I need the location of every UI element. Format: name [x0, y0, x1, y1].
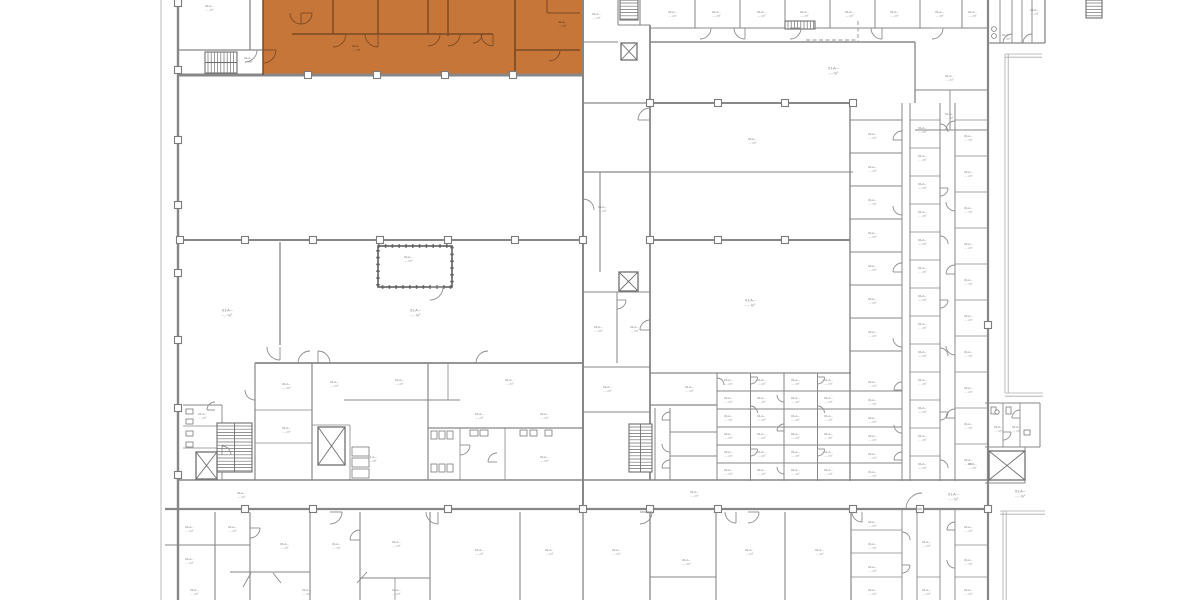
courtyard-outline — [1000, 54, 1045, 600]
room-label: 01-A-··· — [1015, 490, 1026, 494]
room-area-label: ··.·· m² — [368, 459, 377, 463]
staircase-icon — [1086, 0, 1102, 18]
room-area-label: ··.·· m² — [791, 418, 800, 422]
room-area-label: ··.·· m² — [612, 552, 621, 556]
room-area-label: ··.·· m² — [685, 389, 694, 393]
room-area-label: ··.·· m² — [824, 472, 833, 476]
room-area-label: ··.·· m² — [824, 454, 833, 458]
room-area-label: ··.·· m² — [1012, 429, 1021, 433]
room-area-label: ··.·· m² — [598, 209, 607, 213]
room-area-label: ··.·· m² — [918, 326, 927, 330]
room-area-label: ··.·· m² — [964, 354, 973, 358]
room-area-label: ··.·· m² — [824, 400, 833, 404]
room-area-label: ··.·· m² — [332, 546, 341, 550]
room-area-label: ··.·· m² — [945, 78, 954, 82]
elevators — [196, 43, 1025, 480]
room-area-label: ··.·· m² — [745, 552, 754, 556]
room-area-label: ··.·· m² — [868, 301, 877, 305]
room-area-label: ··.·· m² — [868, 474, 877, 478]
room-area-label: ··.·· m² — [845, 14, 854, 18]
room-area-label: ··.·· m² — [410, 313, 421, 317]
room-area-label: ··.·· m² — [757, 436, 766, 440]
room-area-label: ··.·· m² — [918, 410, 927, 414]
room-area-label: ··.·· m² — [757, 400, 766, 404]
room-area-label: ··.·· m² — [392, 544, 401, 548]
room-area-label: ··.·· m² — [592, 16, 601, 20]
room-area-label: ··.·· m² — [757, 472, 766, 476]
room-area-label: ··.·· m² — [724, 418, 733, 422]
room-area-label: ··.·· m² — [222, 313, 233, 317]
elevator-icon — [621, 43, 637, 60]
staircase-icon — [620, 0, 638, 20]
room-area-label: ··.·· m² — [185, 529, 194, 533]
door-swings — [207, 13, 1032, 573]
room-area-label: ··.·· m² — [948, 497, 959, 501]
room-label: 01-A-··· — [745, 299, 756, 303]
room-area-label: ··.·· m² — [964, 210, 973, 214]
room-area-label: ··.·· m² — [964, 529, 973, 533]
room-area-label: ··.·· m² — [935, 14, 944, 18]
room-area-label: ··.·· m² — [868, 136, 877, 140]
room-area-label: ··.·· m² — [330, 384, 339, 388]
room-area-label: ··.·· m² — [868, 268, 877, 272]
room-area-label: ··.·· m² — [682, 562, 691, 566]
room-area-label: ··.·· m² — [918, 382, 927, 386]
room-label: 01-A-··· — [410, 309, 421, 313]
room-area-label: ··.·· m² — [868, 524, 877, 528]
room-area-label: ··.·· m² — [964, 390, 973, 394]
room-area-label: ··.·· m² — [868, 438, 877, 442]
room-area-label: ··.·· m² — [724, 436, 733, 440]
room-area-label: ··.·· m² — [828, 71, 839, 75]
room-area-label: ··.·· m² — [994, 429, 1003, 433]
room-area-label: ··.·· m² — [1002, 37, 1011, 41]
staircase-icon — [205, 52, 237, 73]
room-area-label: ··.·· m² — [918, 158, 927, 162]
room-area-label: ··.·· m² — [868, 546, 877, 550]
room-area-label: ··.·· m² — [964, 174, 973, 178]
elevator-icon — [196, 452, 217, 479]
room-area-label: ··.·· m² — [757, 454, 766, 458]
room-area-label: ··.·· m² — [945, 116, 954, 120]
room-area-label: ··.·· m² — [475, 552, 484, 556]
room-area-label: ··.·· m² — [724, 400, 733, 404]
room-area-label: ··.·· m² — [868, 202, 877, 206]
room-area-label: ··.·· m² — [302, 592, 311, 596]
room-area-label: ··.·· m² — [918, 186, 927, 190]
room-area-label: ··.·· m² — [244, 60, 253, 64]
room-area-label: ··.·· m² — [724, 382, 733, 386]
room-area-label: ··.·· m² — [237, 495, 246, 499]
room-area-label: ··.·· m² — [868, 235, 877, 239]
room-area-label: ··.·· m² — [724, 454, 733, 458]
room-area-label: ··.·· m² — [791, 382, 800, 386]
room-area-label: ··.·· m² — [1030, 12, 1039, 16]
room-area-label: ··.·· m² — [282, 430, 291, 434]
room-area-label: ··.·· m² — [395, 382, 404, 386]
room-area-label: ··.·· m² — [922, 592, 931, 596]
room-area-label: ··.·· m² — [280, 546, 289, 550]
staircase-icon — [629, 424, 652, 472]
room-area-label: ··.·· m² — [964, 562, 973, 566]
room-area-label: ··.·· m² — [745, 303, 756, 307]
floor-plan-drawing: 01-A-·····.·· m²01-A-·····.·· m²01-A-···… — [0, 0, 1200, 600]
room-area-label: ··.·· m² — [964, 246, 973, 250]
room-area-label: ··.·· m² — [868, 402, 877, 406]
room-area-label: ··.·· m² — [791, 472, 800, 476]
dotted-room — [378, 246, 452, 287]
room-area-label: ··.·· m² — [868, 456, 877, 460]
room-area-label: ··.·· m² — [868, 592, 877, 596]
room-area-label: ··.·· m² — [724, 472, 733, 476]
room-area-label: ··.·· m² — [540, 459, 549, 463]
room-area-label: ··.·· m² — [868, 334, 877, 338]
room-area-label: ··.·· m² — [918, 438, 927, 442]
room-area-label: ··.·· m² — [690, 494, 699, 498]
room-area-label: ··.·· m² — [964, 282, 973, 286]
room-area-label: ··.·· m² — [918, 242, 927, 246]
floor-plan-page: 01-A-·····.·· m²01-A-·····.·· m²01-A-···… — [0, 0, 1200, 600]
room-area-label: ··.·· m² — [198, 416, 207, 420]
room-area-label: ··.·· m² — [968, 466, 977, 470]
room-area-label: ··.·· m² — [392, 592, 401, 596]
room-area-label: ··.·· m² — [964, 592, 973, 596]
room-area-label: ··.·· m² — [791, 454, 800, 458]
room-area-label: ··.·· m² — [968, 14, 977, 18]
room-area-label: ··.·· m² — [964, 138, 973, 142]
room-area-label: ··.·· m² — [815, 552, 824, 556]
room-area-label: ··.·· m² — [748, 141, 757, 145]
room-area-label: ··.·· m² — [868, 169, 877, 173]
room-area-label: ··.·· m² — [185, 561, 194, 565]
room-area-label: ··.·· m² — [545, 552, 554, 556]
elevator-icon — [318, 427, 345, 465]
room-area-label: ··.·· m² — [712, 14, 721, 18]
room-area-label: ··.·· m² — [922, 544, 931, 548]
room-area-label: ··.·· m² — [791, 400, 800, 404]
room-label: 01-A-··· — [222, 309, 233, 313]
elevator-icon — [989, 451, 1025, 480]
room-area-label: ··.·· m² — [282, 386, 291, 390]
room-area-label: ··.·· m² — [918, 214, 927, 218]
room-area-label: ··.·· m² — [868, 569, 877, 573]
room-area-label: ··.·· m² — [964, 318, 973, 322]
room-label: 01-A-··· — [948, 493, 959, 497]
room-area-label: ··.·· m² — [918, 466, 927, 470]
room-area-label: ··.·· m² — [505, 382, 514, 386]
room-area-label: ··.·· m² — [603, 389, 612, 393]
room-area-label: ··.·· m² — [964, 426, 973, 430]
room-area-label: ··.·· m² — [918, 130, 927, 134]
room-area-label: ··.·· m² — [868, 420, 877, 424]
room-area-label: ··.·· m² — [824, 418, 833, 422]
room-area-label: ··.·· m² — [918, 354, 927, 358]
room-area-label: ··.·· m² — [918, 270, 927, 274]
room-area-label: ··.·· m² — [824, 382, 833, 386]
walls-layer — [161, 0, 1045, 600]
room-area-label: ··.·· m² — [1015, 494, 1026, 498]
room-area-label: ··.·· m² — [404, 259, 413, 263]
room-area-label: ··.·· m² — [868, 384, 877, 388]
room-area-label: ··.·· m² — [757, 382, 766, 386]
room-area-label: ··.·· m² — [352, 48, 361, 52]
room-area-label: ··.·· m² — [630, 329, 639, 333]
room-area-label: ··.·· m² — [800, 14, 809, 18]
room-area-label: ··.·· m² — [791, 436, 800, 440]
elevator-icon — [619, 272, 638, 291]
room-area-label: ··.·· m² — [540, 416, 549, 420]
room-area-label: ··.·· m² — [205, 8, 214, 12]
highlighted-area[interactable] — [263, 0, 583, 75]
room-area-label: ··.·· m² — [190, 592, 199, 596]
room-label: 01-A-··· — [828, 67, 839, 71]
room-area-label: ··.·· m² — [228, 529, 237, 533]
room-area-label: ··.·· m² — [824, 436, 833, 440]
room-area-label: ··.·· m² — [475, 416, 484, 420]
room-area-label: ··.·· m² — [918, 298, 927, 302]
room-area-label: ··.·· m² — [594, 329, 603, 333]
room-area-label: ··.·· m² — [558, 24, 567, 28]
room-area-label: ··.·· m² — [757, 14, 766, 18]
room-area-label: ··.·· m² — [668, 14, 677, 18]
room-area-label: ··.·· m² — [890, 14, 899, 18]
room-area-label: ··.·· m² — [757, 418, 766, 422]
